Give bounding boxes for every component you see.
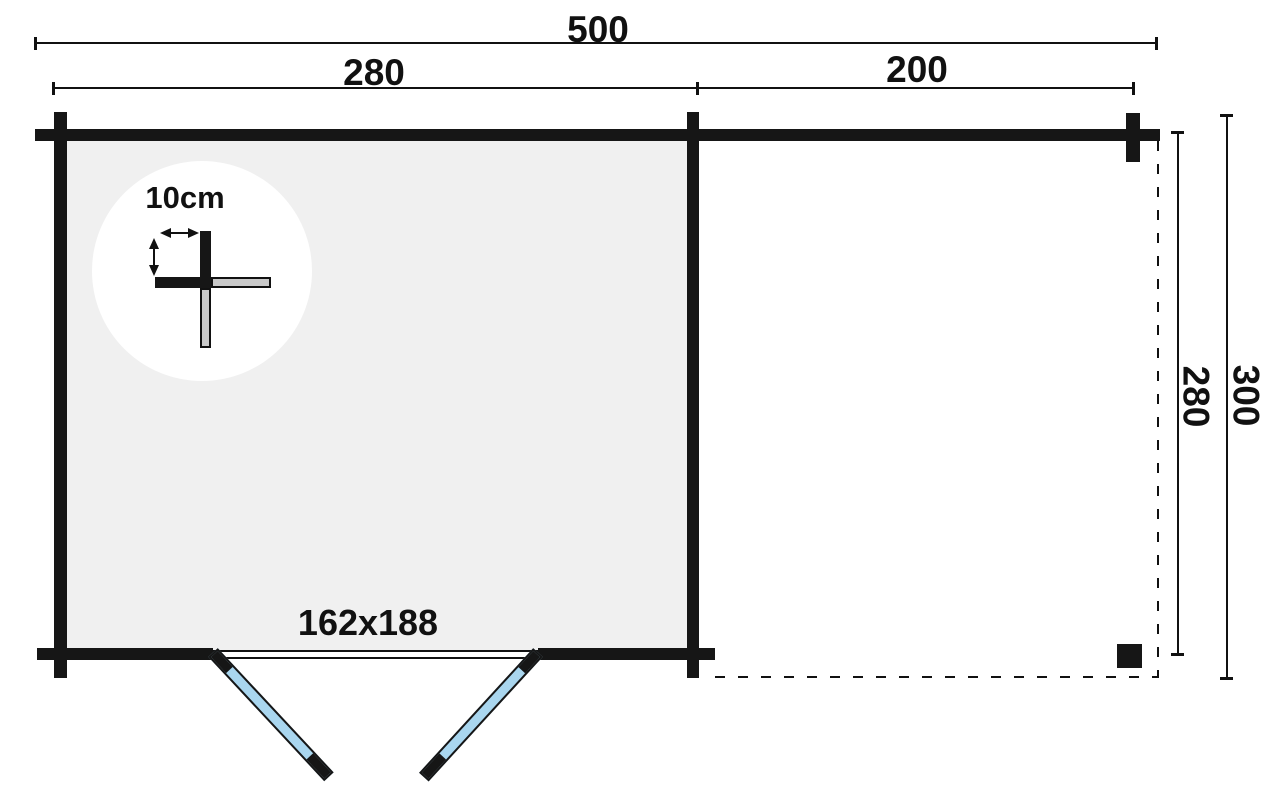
dim-tick [52,82,55,95]
door-edge [307,753,331,778]
dim-tick [1171,653,1184,656]
door-size-label: 162x188 [288,604,448,641]
double-arrow-vertical-icon [149,238,159,276]
wall-left [54,112,67,678]
door-leaf-right [419,648,543,781]
dim-tick [696,82,699,95]
dim-tick [1171,131,1184,134]
detail-log-horizontal-grey [211,277,271,288]
floor-plan-diagram: 500 280 200 10cm 162x188 280 [0,0,1280,796]
door-threshold [213,650,538,659]
double-arrow-horizontal-icon [160,228,199,238]
wall-middle [687,112,699,678]
dim-tick [1155,37,1158,50]
dim-tick [34,37,37,50]
detail-log-vertical-grey [200,288,211,348]
dim-tick [1220,677,1233,680]
log-end-top-right [1126,113,1140,162]
wall-bottom-left-segment [37,648,213,660]
canopy-outline-right [1157,141,1159,678]
door-leaf-left [208,648,333,781]
dim-tick [1132,82,1135,95]
dim-label-overall-width: 500 [538,11,658,48]
dim-label-canopy-width: 200 [857,51,977,88]
dim-label-overall-depth: 300 [1228,336,1265,456]
door-edge [422,753,446,778]
wall-top [35,129,1160,141]
dim-tick [1220,114,1233,117]
dim-label-inner-depth: 280 [1178,337,1215,457]
canopy-outline-bottom [715,676,1158,678]
canopy-post [1117,644,1142,668]
wall-bottom-right-segment [538,648,715,660]
detail-log-horizontal-black [155,277,211,288]
dim-label-main-room-width: 280 [314,54,434,91]
wall-thickness-label: 10cm [135,182,235,213]
